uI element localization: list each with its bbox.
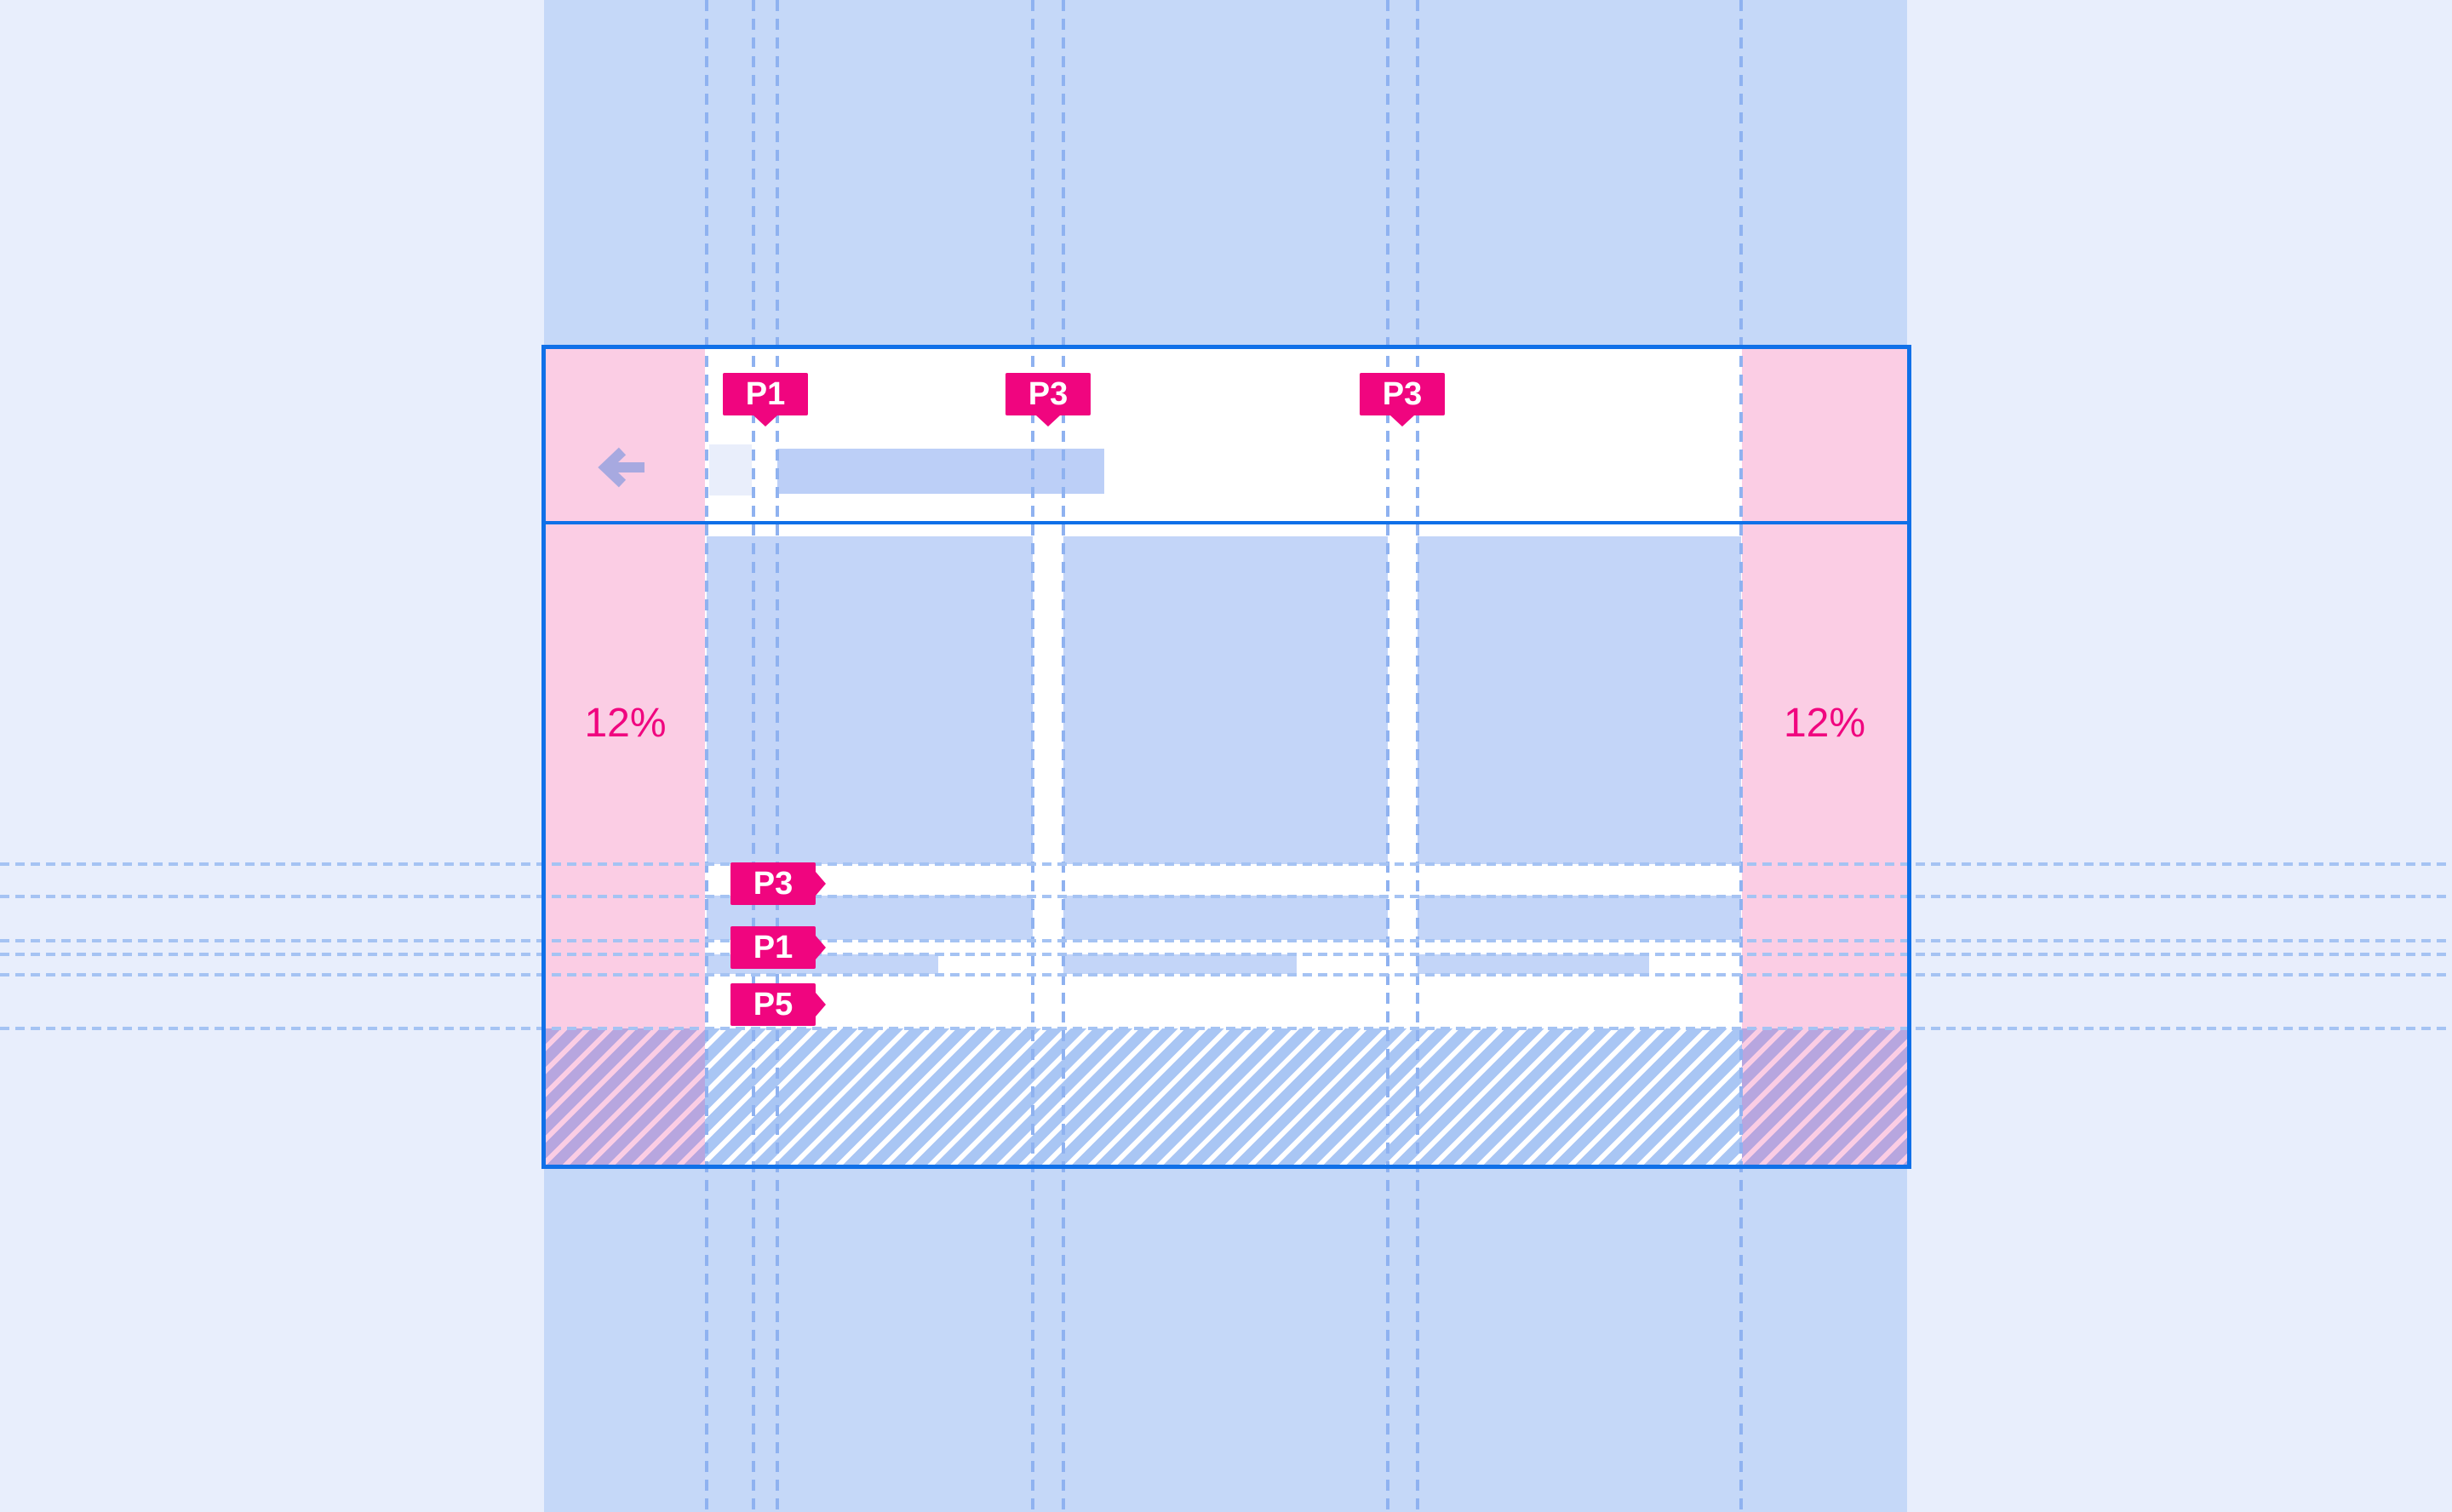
padding-chip: P5: [730, 983, 816, 1026]
padding-chip: P3: [1005, 373, 1091, 415]
layout-spec-diagram: P1 P3 P3 P3 P1 P5 12% 12%: [0, 0, 2452, 1512]
padding-chip: P1: [730, 926, 816, 969]
margin-label-left: 12%: [546, 700, 705, 747]
margin-label-right: 12%: [1742, 700, 1907, 747]
padding-chip: P1: [723, 373, 808, 415]
padding-chip: P3: [730, 862, 816, 905]
screen-card-frame: [541, 345, 1911, 1169]
padding-chip: P3: [1360, 373, 1445, 415]
